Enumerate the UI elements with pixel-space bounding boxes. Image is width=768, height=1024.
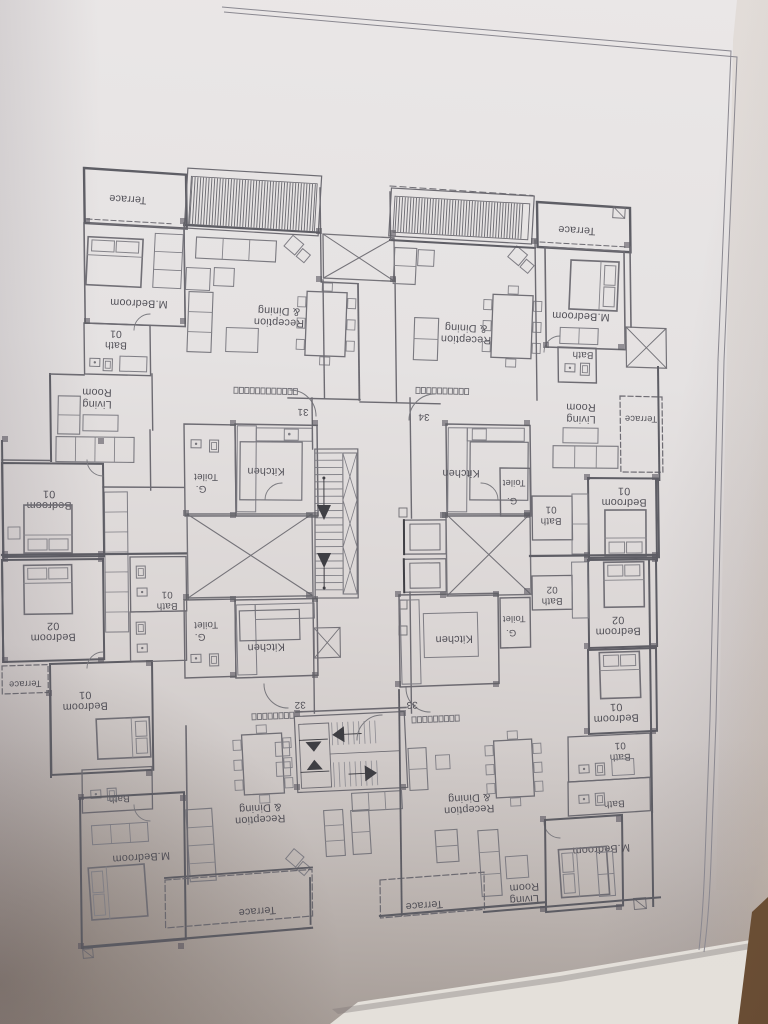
svg-text:Terrace: Terrace: [625, 414, 658, 425]
svg-text:01: 01: [545, 504, 556, 515]
svg-text:01: 01: [614, 740, 626, 751]
svg-text:Room: Room: [509, 880, 539, 894]
svg-text:& Dining: & Dining: [257, 304, 300, 318]
svg-text:Bedroom: Bedroom: [30, 631, 75, 644]
svg-text:Bath: Bath: [108, 792, 130, 804]
svg-text:Terrace: Terrace: [558, 223, 596, 237]
svg-text:Bedroom: Bedroom: [62, 699, 108, 713]
svg-text:Bath: Bath: [603, 797, 625, 809]
svg-text:Bedroom: Bedroom: [593, 711, 639, 725]
svg-text:32: 32: [294, 699, 306, 710]
svg-text:Terrace: Terrace: [109, 192, 147, 206]
svg-text:Terrace: Terrace: [9, 678, 42, 689]
svg-text:G.: G.: [196, 483, 207, 494]
svg-text:Reception: Reception: [441, 332, 492, 346]
svg-text:01: 01: [161, 589, 172, 600]
svg-text:& Dining: & Dining: [444, 321, 487, 335]
svg-text:M.Bedroom: M.Bedroom: [110, 296, 168, 310]
svg-text:M.Bedroom: M.Bedroom: [572, 841, 630, 857]
svg-text:33: 33: [406, 699, 418, 710]
svg-text:Kitchen: Kitchen: [435, 633, 473, 646]
svg-text:G.: G.: [195, 631, 206, 642]
svg-text:G.: G.: [506, 628, 516, 638]
svg-text:Kitchen: Kitchen: [247, 465, 285, 477]
svg-text:Bedroom: Bedroom: [601, 496, 646, 508]
svg-text:01: 01: [110, 328, 122, 339]
svg-text:Bath: Bath: [541, 515, 562, 526]
svg-text:Room: Room: [566, 401, 596, 414]
svg-text:01: 01: [43, 488, 55, 500]
svg-text:Bath: Bath: [156, 600, 177, 611]
svg-text:Terrace: Terrace: [238, 904, 276, 919]
svg-text:Room: Room: [82, 386, 112, 399]
svg-text:01: 01: [610, 701, 623, 713]
svg-text:Living: Living: [566, 413, 596, 426]
svg-text:Bath: Bath: [105, 339, 127, 351]
svg-text:Toilet: Toilet: [194, 471, 218, 482]
svg-text:Bath: Bath: [572, 349, 593, 361]
svg-text:Toilet: Toilet: [502, 614, 525, 624]
svg-text:Bath: Bath: [609, 751, 630, 763]
svg-text:G.: G.: [507, 496, 517, 506]
svg-text:Bath: Bath: [541, 595, 562, 606]
svg-text:02: 02: [546, 584, 557, 595]
svg-text:01: 01: [618, 485, 630, 497]
svg-text:M.Bedroom: M.Bedroom: [112, 849, 170, 865]
svg-text:Living: Living: [82, 398, 112, 411]
svg-text:Bedroom: Bedroom: [595, 625, 640, 638]
svg-text:01: 01: [79, 689, 92, 701]
svg-text:Toilet: Toilet: [194, 619, 218, 631]
svg-text:Toilet: Toilet: [502, 478, 525, 488]
svg-text:Kitchen: Kitchen: [247, 641, 285, 654]
svg-text:02: 02: [612, 614, 625, 626]
svg-text:02: 02: [47, 620, 60, 632]
svg-text:31: 31: [297, 406, 309, 417]
svg-text:34: 34: [418, 411, 430, 422]
